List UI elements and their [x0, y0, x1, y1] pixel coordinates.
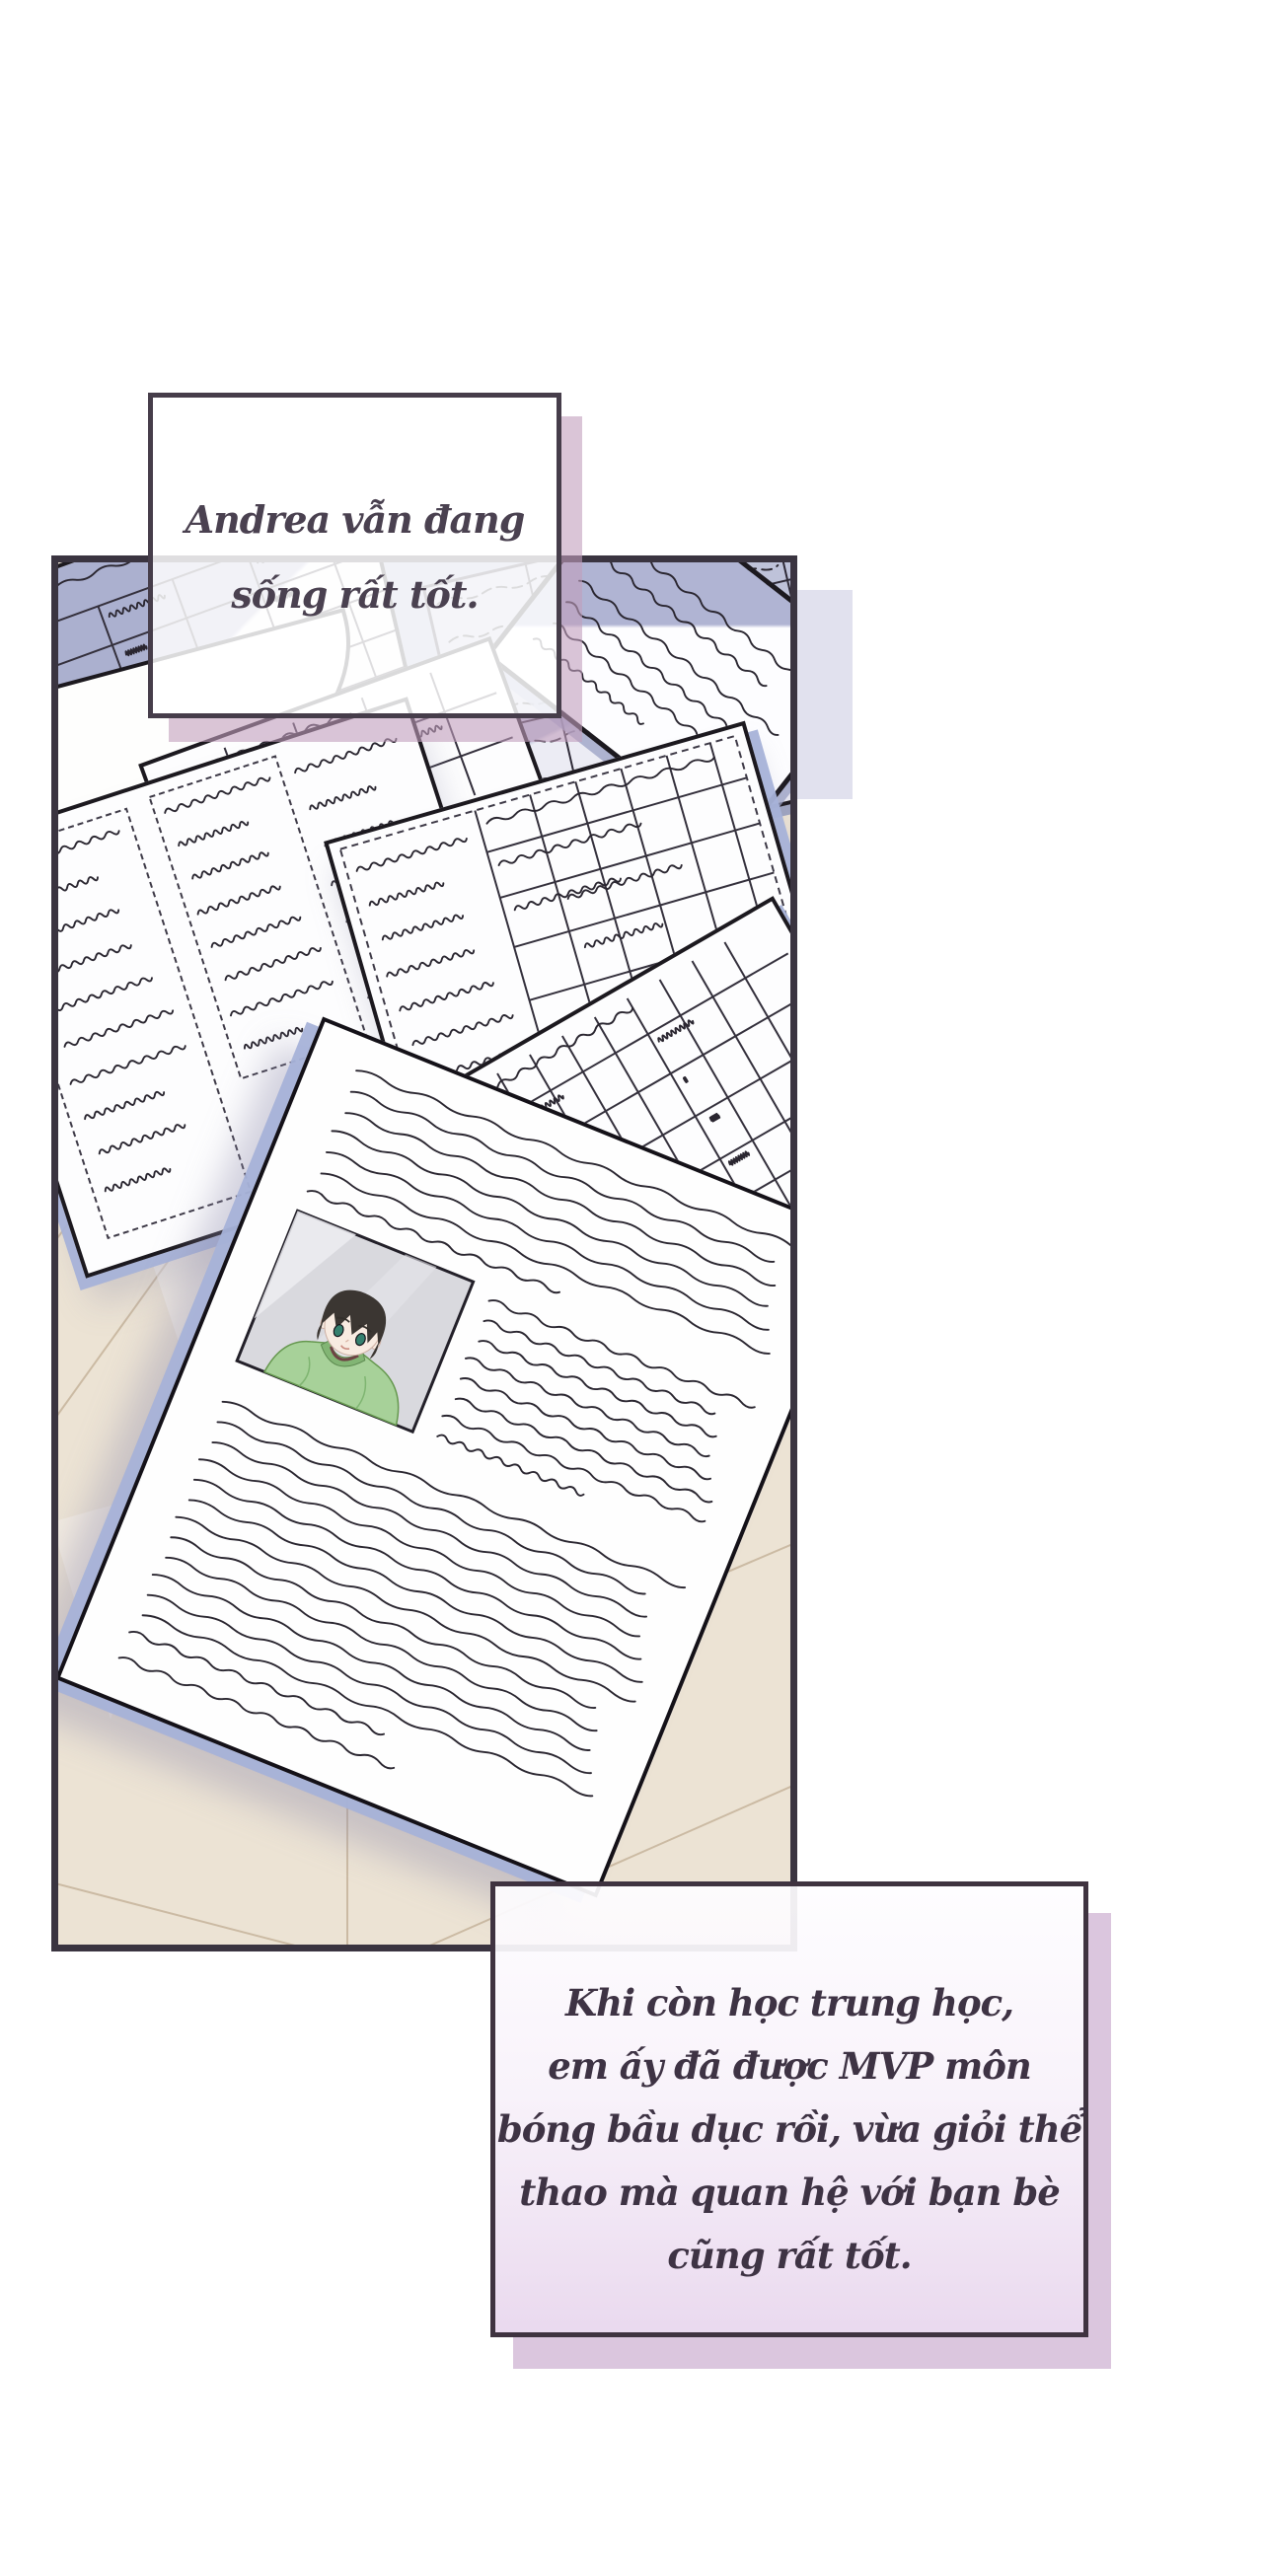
scribble-text-line	[178, 820, 249, 847]
speech-line: cũng rất tốt.	[495, 2224, 1083, 2287]
scribble-text-line	[565, 600, 737, 735]
scribble-text-line	[382, 914, 464, 941]
scribble-text-line	[584, 921, 663, 948]
scribble-text-line	[455, 1396, 712, 1504]
scribble-text-line	[399, 981, 493, 1012]
scribble-text-line	[465, 1356, 709, 1458]
speech-line: bóng bầu dục rồi, vừa giỏi thể	[495, 2098, 1083, 2161]
scribble-text-line	[51, 908, 119, 941]
scribble-text-line	[69, 1044, 186, 1086]
scribble-text-line	[210, 915, 301, 948]
scribble-text-line	[84, 1090, 165, 1121]
scribble-text-line	[51, 943, 132, 979]
scribble-text-line	[514, 876, 622, 912]
speech-line: Andrea vẫn đang	[153, 482, 557, 557]
scribble-text-line	[294, 736, 397, 773]
portrait-photo	[237, 1211, 473, 1432]
scribble-text-line	[369, 881, 444, 907]
speech-line: em ấy đã được MVP môn	[495, 2034, 1083, 2098]
scribble-text-line	[460, 1375, 711, 1481]
scribble-text-line	[125, 644, 147, 656]
scribble-text-line	[212, 1439, 647, 1619]
scribble-text-line	[166, 1555, 598, 1733]
scribble-text-line	[309, 784, 376, 810]
scribble-text-line	[171, 1534, 597, 1710]
art-panel	[51, 555, 797, 1951]
scribble-text-line	[51, 829, 119, 872]
scribble-text-line	[244, 1026, 303, 1050]
scribble-text-line	[600, 555, 768, 688]
scribble-text-line	[442, 1413, 706, 1523]
speech-line: sống rất tốt.	[153, 557, 557, 632]
speech-line: Khi còn học trung học,	[495, 1971, 1083, 2034]
speech-bubble-bottom: Khi còn học trung học, em ấy đã được MVP…	[490, 1881, 1088, 2337]
scribble-text-line	[51, 976, 153, 1013]
scribble-text-line	[197, 884, 281, 916]
scribble-text-line	[230, 979, 334, 1016]
scribble-text-line	[191, 850, 268, 880]
speech-bubble-top: Andrea vẫn đang sống rất tốt.	[148, 393, 561, 718]
scribble-text-line	[411, 1013, 513, 1047]
scribble-text-line	[63, 1008, 174, 1048]
scribble-text-line	[483, 1318, 715, 1416]
scribble-text-line	[356, 837, 468, 873]
scribble-text-line	[152, 1572, 590, 1752]
scribble-text-line	[567, 863, 683, 901]
scribble-text-line	[684, 1077, 688, 1082]
scribble-text-line	[578, 578, 780, 737]
scribble-text-line	[224, 946, 321, 982]
scribble-text-line	[105, 1167, 171, 1193]
scribble-text-line	[99, 1123, 186, 1155]
scribble-text-line	[217, 1419, 646, 1596]
scribble-text-line	[386, 948, 475, 978]
scribble-text-line	[51, 875, 99, 907]
speech-line: thao mà quan hệ với bạn bè	[495, 2161, 1083, 2224]
scribble-text-line	[129, 1629, 385, 1736]
comic-page: Andrea vẫn đang sống rất tốt. Khi còn họ…	[0, 0, 1263, 2576]
scribble-text-line	[488, 1297, 756, 1409]
scribble-text-line	[164, 775, 270, 814]
scribble-text-line	[222, 1399, 686, 1590]
paper-peek-right	[797, 590, 853, 799]
scribble-text-line	[709, 1113, 719, 1122]
